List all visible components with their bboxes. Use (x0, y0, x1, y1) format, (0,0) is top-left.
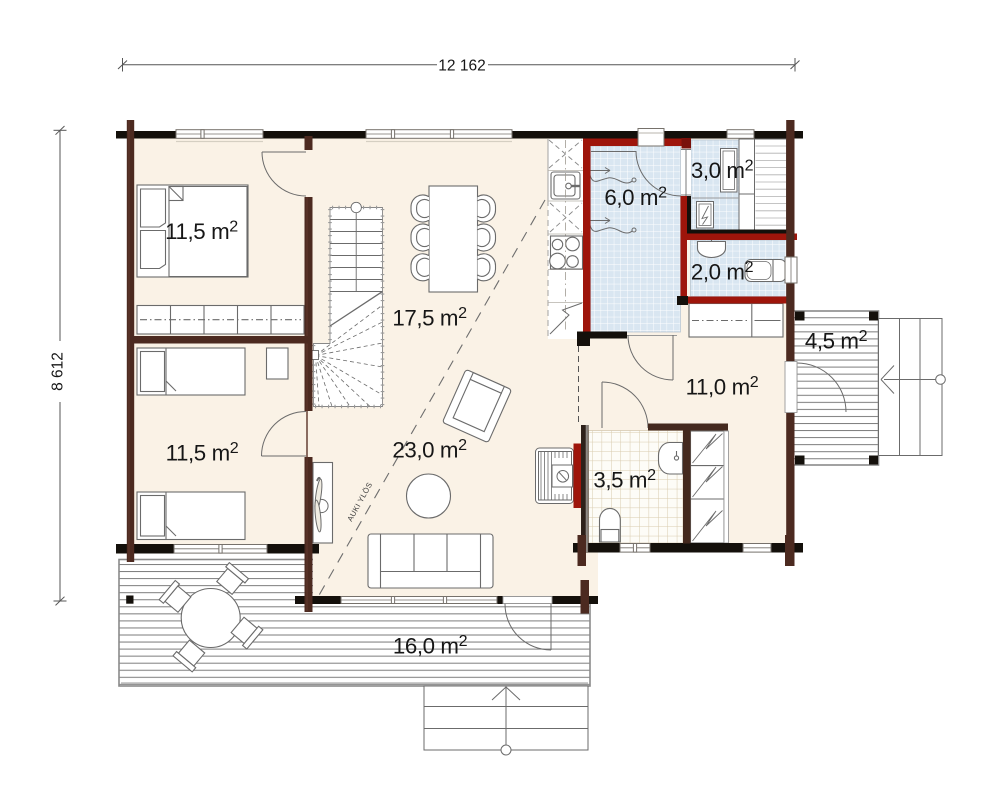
svg-text:16,0 m2: 16,0 m2 (393, 632, 468, 658)
svg-text:3,0 m2: 3,0 m2 (691, 157, 754, 183)
svg-text:8 612: 8 612 (50, 352, 67, 391)
svg-text:23,0 m2: 23,0 m2 (392, 436, 467, 462)
svg-text:6,0 m2: 6,0 m2 (604, 184, 667, 210)
svg-text:12 162: 12 162 (438, 58, 485, 75)
svg-text:17,5 m2: 17,5 m2 (392, 304, 467, 330)
svg-text:2,0 m2: 2,0 m2 (691, 258, 754, 284)
svg-text:4,5 m2: 4,5 m2 (805, 327, 868, 353)
svg-text:11,5 m2: 11,5 m2 (166, 439, 239, 465)
svg-text:11,5 m2: 11,5 m2 (165, 218, 238, 244)
svg-text:11,0 m2: 11,0 m2 (686, 373, 759, 399)
svg-text:3,5 m2: 3,5 m2 (593, 466, 656, 492)
